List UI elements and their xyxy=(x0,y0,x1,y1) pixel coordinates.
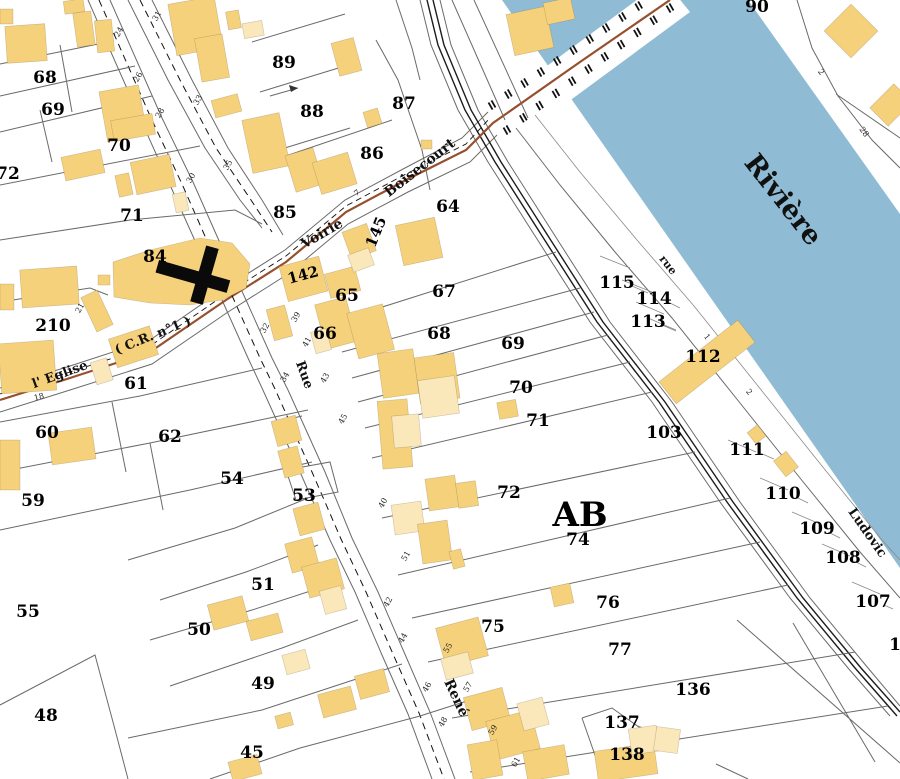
parcel-number-label: 68 xyxy=(33,68,57,88)
house-number-label: 35 xyxy=(222,158,235,171)
parcel-number-label: 53 xyxy=(292,486,316,506)
parcel-number-label: 110 xyxy=(765,484,801,504)
street-name-label: rue xyxy=(656,253,679,277)
parcel-number-label: 69 xyxy=(41,100,65,120)
parcel-number-label: 137 xyxy=(604,713,640,733)
house-number-label: 61 xyxy=(510,755,523,768)
house-number-label: 7 xyxy=(352,188,361,198)
parcel-number-label: 114 xyxy=(636,289,672,309)
house-number-label: 39 xyxy=(290,310,303,323)
house-number-label: 28 xyxy=(154,106,167,119)
house-number-label: 2 xyxy=(744,387,754,397)
parcel-number-label: 71 xyxy=(120,206,144,226)
parcel-number-label: 51 xyxy=(251,575,275,595)
cadastral-map-canvas[interactable]: 9068697072718988878685648421061606254595… xyxy=(0,0,900,779)
parcel-number-label: 61 xyxy=(124,374,148,394)
house-number-label: 18 xyxy=(33,391,45,402)
house-number-label: 24 xyxy=(113,25,126,38)
parcel-number-label: 138 xyxy=(609,745,645,765)
house-number-label: 57 xyxy=(462,680,475,693)
parcel-number-label: 70 xyxy=(509,378,533,398)
house-number-label: 43 xyxy=(319,371,332,384)
house-number-label: 42 xyxy=(382,595,395,608)
parcel-number-label: 90 xyxy=(745,0,769,17)
cadastral-map: 9068697072718988878685648421061606254595… xyxy=(0,0,900,779)
parcel-number-label: 77 xyxy=(608,640,632,660)
parcel-number-label: 112 xyxy=(685,347,721,367)
parcel-number-label: 62 xyxy=(158,427,182,447)
street-name-label: Rue xyxy=(292,359,316,391)
parcel-number-label: 1 xyxy=(889,635,900,655)
parcel-number-label: 109 xyxy=(799,519,835,539)
parcel-number-label: 72 xyxy=(497,483,521,503)
house-number-label: 1 xyxy=(702,332,712,342)
parcel-number-label: 68 xyxy=(427,324,451,344)
parcel-number-label: 70 xyxy=(107,136,131,156)
house-number-label: 34 xyxy=(279,370,292,383)
parcel-number-label: 103 xyxy=(646,423,682,443)
house-number-label: 30 xyxy=(185,171,198,184)
parcel-number-label: 85 xyxy=(273,203,297,223)
house-number-label: 33 xyxy=(192,93,205,106)
parcel-number-label: 66 xyxy=(313,324,337,344)
parcel-number-label: 87 xyxy=(392,94,416,114)
parcel-number-label: 108 xyxy=(825,548,861,568)
parcel-number-label: 48 xyxy=(34,706,58,726)
parcel-number-label: 136 xyxy=(675,680,711,700)
parcel-number-label: 55 xyxy=(16,602,40,622)
parcel-number-label: 115 xyxy=(599,273,635,293)
parcel-number-label: 64 xyxy=(436,197,460,217)
parcel-number-label: 74 xyxy=(566,530,590,550)
house-number-label: 2 xyxy=(816,67,826,76)
parcel-number-label: 107 xyxy=(855,592,891,612)
house-number-label: 40 xyxy=(377,496,390,509)
parcel-number-label: 111 xyxy=(729,440,765,460)
parcel-number-label: 45 xyxy=(240,743,264,763)
parcel-number-label: AB xyxy=(551,495,607,535)
parcel-number-label: 67 xyxy=(432,282,456,302)
parcel-number-label: 88 xyxy=(300,102,324,122)
parcel-number-label: 72 xyxy=(0,164,20,184)
arrow-head xyxy=(289,85,298,92)
house-number-label: 51 xyxy=(400,549,413,562)
parcel-number-label: 54 xyxy=(220,469,244,489)
parcel-number-label: 210 xyxy=(35,316,71,336)
parcel-number-label: 59 xyxy=(21,491,45,511)
parcel-number-label: 71 xyxy=(526,411,550,431)
house-number-label: 46 xyxy=(421,680,434,693)
house-number-label: 28 xyxy=(857,125,870,139)
house-number-label: 31 xyxy=(151,9,164,22)
parcel-number-label: 65 xyxy=(335,286,359,306)
parcel-number-label: 50 xyxy=(187,620,211,640)
parcel-number-label: 76 xyxy=(596,593,620,613)
house-number-label: 26 xyxy=(132,70,145,83)
house-number-label: 45 xyxy=(337,412,350,425)
house-number-label: 44 xyxy=(397,631,410,644)
parcel-number-label: 86 xyxy=(360,144,384,164)
parcel-number-label: 60 xyxy=(35,423,59,443)
parcel-number-label: 145 xyxy=(362,214,390,250)
parcel-number-label: 89 xyxy=(272,53,296,73)
parcel-number-label: 75 xyxy=(481,617,505,637)
parcel-number-label: 84 xyxy=(143,247,167,267)
parcel-number-label: 69 xyxy=(501,334,525,354)
street-name-label: Voirie xyxy=(297,216,346,253)
parcel-number-label: 113 xyxy=(630,312,666,332)
parcel-number-label: 49 xyxy=(251,674,275,694)
house-number-label: 48 xyxy=(437,715,450,728)
